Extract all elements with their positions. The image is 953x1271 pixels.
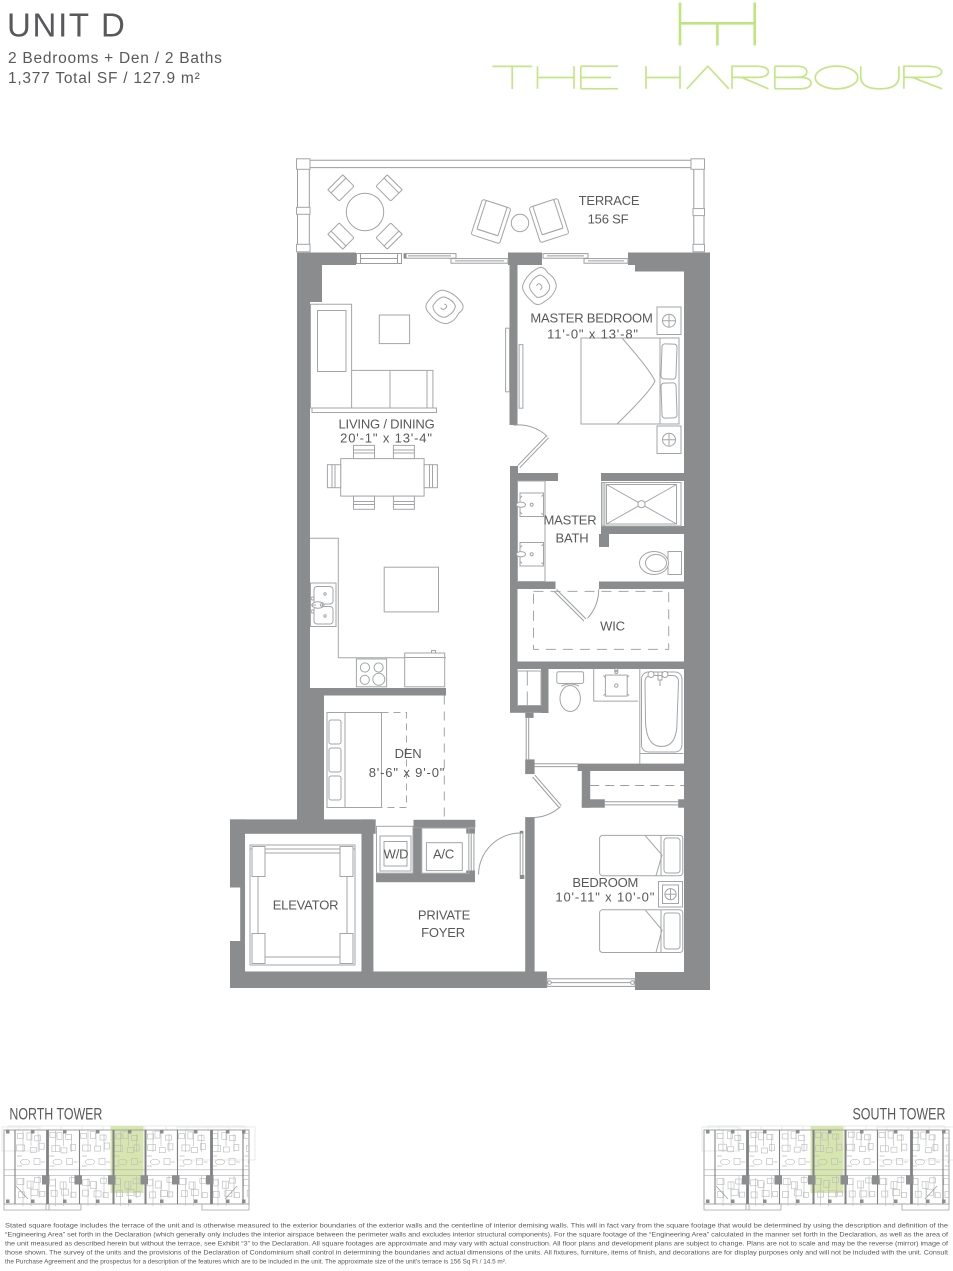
svg-text:WIC: WIC <box>600 619 625 634</box>
svg-text:BATH: BATH <box>556 531 589 546</box>
svg-text:156 SF: 156 SF <box>588 212 629 227</box>
svg-text:LIVING / DINING: LIVING / DINING <box>339 417 435 432</box>
svg-text:FOYER: FOYER <box>421 925 465 940</box>
svg-text:1,377 Total SF / 127.9 m²: 1,377 Total SF / 127.9 m² <box>8 70 201 87</box>
svg-text:those shown. The survey of the: those shown. The survey of the units and… <box>5 1250 948 1257</box>
svg-text:W/D: W/D <box>384 847 409 862</box>
svg-text:ELEVATOR: ELEVATOR <box>273 898 339 913</box>
svg-text:10'-11" x 10'-0": 10'-11" x 10'-0" <box>555 890 655 905</box>
svg-text:PRIVATE: PRIVATE <box>418 908 471 923</box>
svg-text:MASTER: MASTER <box>544 513 597 528</box>
svg-text:Stated square footage includes: Stated square footage includes the terra… <box>5 1223 949 1230</box>
svg-text:“Engineering Area” set forth i: “Engineering Area” set forth in the Decl… <box>5 1232 948 1239</box>
svg-text:UNIT D: UNIT D <box>7 7 127 44</box>
svg-text:A/C: A/C <box>433 847 454 862</box>
svg-text:DEN: DEN <box>395 746 422 761</box>
svg-text:MASTER BEDROOM: MASTER BEDROOM <box>530 311 652 326</box>
svg-text:BEDROOM: BEDROOM <box>572 875 638 890</box>
svg-text:the unit measured as described: the unit measured as described herein bu… <box>5 1241 948 1248</box>
svg-text:SOUTH TOWER: SOUTH TOWER <box>853 1106 946 1124</box>
svg-text:NORTH TOWER: NORTH TOWER <box>9 1106 102 1124</box>
svg-text:11'-0" x 13'-8": 11'-0" x 13'-8" <box>547 327 639 342</box>
svg-text:TERRACE: TERRACE <box>579 193 640 208</box>
svg-text:8'-6" x 9'-0": 8'-6" x 9'-0" <box>369 765 446 780</box>
svg-text:2 Bedrooms + Den / 2 Baths: 2 Bedrooms + Den / 2 Baths <box>8 50 223 67</box>
svg-text:20'-1" x 13'-4": 20'-1" x 13'-4" <box>340 431 433 446</box>
svg-text:the Purchase Agreement and the: the Purchase Agreement and the prospectu… <box>5 1259 507 1266</box>
